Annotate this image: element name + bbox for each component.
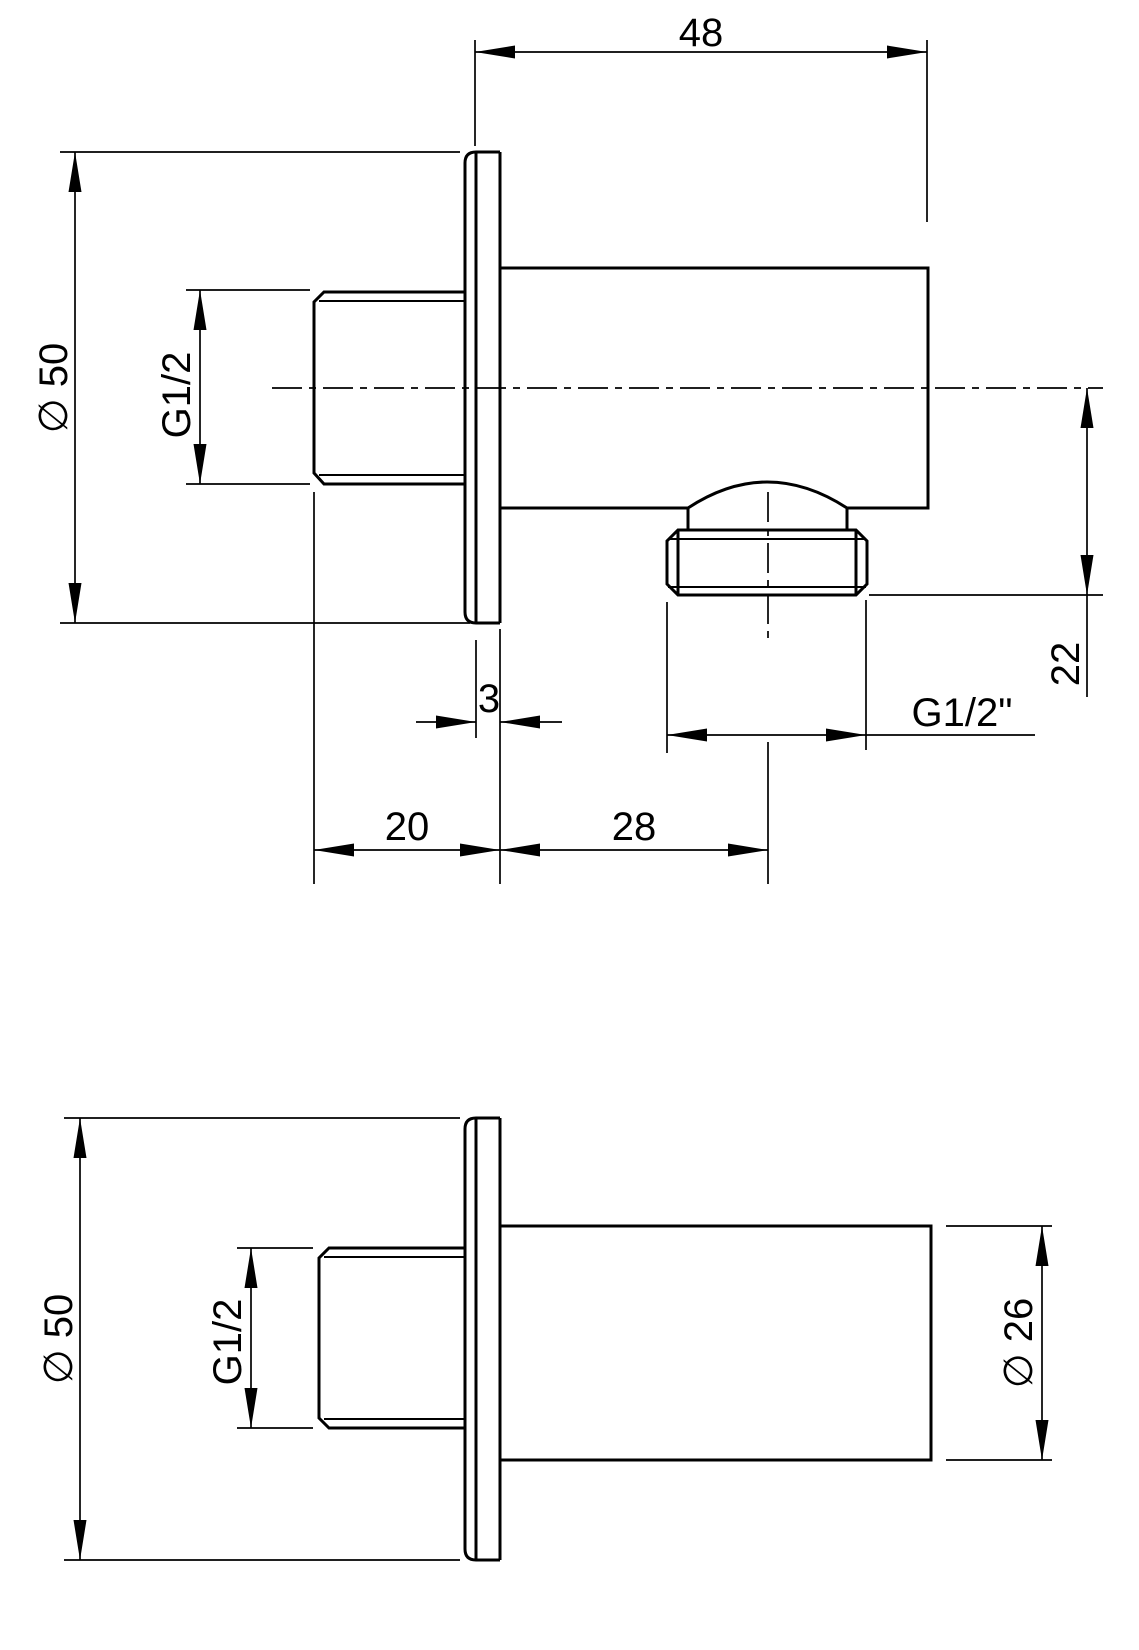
dim-20-28-lines [314,492,768,884]
outlet-nut-facet-lines [668,539,866,587]
side-view: 48 ∅ 50 G1/2 3 22 G1/2" 20 28 [32,11,1103,884]
front-view-part [319,1118,931,1560]
dim-flange-diameter-label: ∅ 50 [37,1294,81,1384]
side-view-part [272,152,1103,640]
dim-48-label: 48 [679,11,724,55]
dim-body-diameter-label: ∅ 26 [997,1298,1041,1388]
inlet-thread-outline [319,1248,465,1428]
dim-dia50-lines [64,1118,460,1560]
dim-inlet-thread-label: G1/2 [206,1299,250,1386]
dim-flange-diameter-label: ∅ 50 [32,343,76,433]
dim-inlet-thread-label: G1/2 [155,352,199,439]
dim-dia50-lines [60,152,470,623]
dim-outlet-drop-label: 22 [1044,642,1088,687]
wall-flange-outline [465,1118,500,1560]
side-view-dimension-lines [60,40,1103,884]
front-view: ∅ 50 G1/2 ∅ 26 [37,1118,1052,1560]
technical-drawing-sheet: 48 ∅ 50 G1/2 3 22 G1/2" 20 28 [0,0,1139,1650]
body-cylinder-outline [500,1226,931,1460]
inlet-thread-core-lines [324,1257,465,1419]
dim-48-lines [475,40,927,222]
wall-outlet-elbow-drawing: 48 ∅ 50 G1/2 3 22 G1/2" 20 28 [0,0,1139,1650]
dim-20-label: 20 [385,805,430,849]
dim-28-label: 28 [612,805,657,849]
dim-flange-thickness-label: 3 [478,677,500,721]
dim-outlet-thread-label: G1/2" [912,691,1013,735]
